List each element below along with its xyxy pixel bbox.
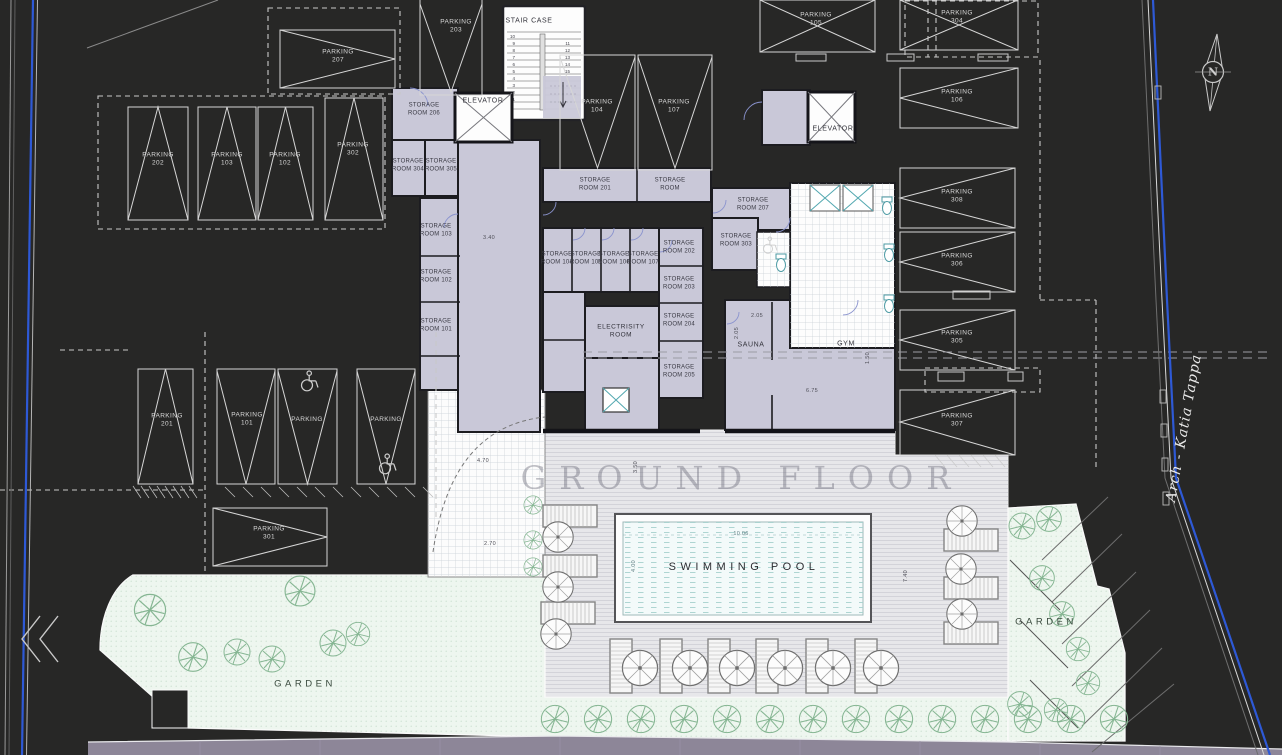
dim-sauna-h: 2.05 — [734, 327, 740, 339]
dim-pool-width: 4.00 — [631, 560, 637, 572]
dim-entry: 4.70 — [477, 458, 489, 464]
swimming-pool-label: SWIMMING POOL — [669, 561, 820, 573]
parking-label-201: PARKING201 — [151, 413, 183, 430]
stair-numbers-left: 10987654321 — [505, 33, 515, 103]
parking-label-207: PARKING207 — [322, 49, 354, 66]
storage-label-101: STORAGEROOM 101 — [420, 319, 452, 334]
parking-label-305: PARKING305 — [941, 330, 973, 347]
storage-label-unnumbered: STORAGEROOM — [655, 178, 686, 193]
parking-label-103: PARKING103 — [211, 152, 243, 169]
parking-label-302: PARKING302 — [337, 142, 369, 159]
parking-label-307: PARKING307 — [941, 413, 973, 430]
storage-label-104: STORAGEROOM 104 — [541, 252, 573, 267]
storage-label-102: STORAGEROOM 102 — [420, 270, 452, 285]
storage-label-305: STORAGEROOM 305 — [425, 159, 457, 174]
storage-label-106: STORAGEROOM 106 — [598, 252, 630, 267]
elevator-label-b: ELEVATOR — [813, 126, 854, 133]
garden-label-right: GARDEN — [1015, 617, 1077, 628]
parking-label-102: PARKING102 — [269, 152, 301, 169]
floor-title-watermark: GROUND FLOOR — [521, 459, 964, 497]
north-compass-icon: N — [1208, 66, 1218, 79]
dim-corridor: 3.40 — [483, 235, 495, 241]
elevator-label-a: ELEVATOR — [463, 98, 504, 105]
storage-label-201: STORAGEROOM 201 — [579, 178, 611, 193]
dim-deck-right: 7.40 — [903, 570, 909, 582]
dim-gym-v: 1.50 — [865, 352, 871, 364]
storage-label-206: STORAGEROOM 206 — [408, 103, 440, 118]
parking-label-306: PARKING306 — [941, 253, 973, 270]
garden-label-left: GARDEN — [274, 679, 336, 690]
storage-label-303: STORAGEROOM 303 — [720, 234, 752, 249]
gym-label: GYM — [837, 341, 855, 348]
storage-label-203: STORAGEROOM 203 — [663, 277, 695, 292]
parking-label-105: PARKING105 — [800, 12, 832, 29]
storage-label-304: STORAGEROOM 304 — [392, 159, 424, 174]
storage-label-202: STORAGEROOM 202 — [663, 241, 695, 256]
storage-label-205: STORAGEROOM 205 — [663, 365, 695, 380]
site-plan-graphics — [0, 0, 1282, 755]
dim-gym-w: 6.75 — [806, 388, 818, 394]
storage-label-207: STORAGEROOM 207 — [737, 198, 769, 213]
storage-label-107: STORAGEROOM 107 — [627, 252, 659, 267]
parking-label-accessible-2: PARKING — [370, 416, 402, 424]
stair-numbers-right: 1112131415 — [558, 40, 570, 75]
parking-label-301: PARKING301 — [253, 526, 285, 543]
floor-plan-canvas: GROUND FLOOR PARKING207 PARKING203 PARKI… — [0, 0, 1282, 755]
parking-label-202: PARKING202 — [142, 152, 174, 169]
dim-pool-length: 10.06 — [733, 531, 748, 537]
parking-label-308: PARKING308 — [941, 189, 973, 206]
sauna-label: SAUNA — [737, 342, 764, 349]
parking-label-106: PARKING106 — [941, 89, 973, 106]
parking-label-101: PARKING101 — [231, 412, 263, 429]
parking-label-104: PARKING104 — [581, 99, 613, 116]
parking-label-accessible-1: PARKING — [291, 416, 323, 424]
dim-deck-v: 3.50 — [633, 461, 639, 473]
electricity-room-label: ELECTRISITYROOM — [597, 324, 644, 341]
parking-label-304: PARKING304 — [941, 10, 973, 27]
parking-label-203: PARKING203 — [440, 19, 472, 36]
stair-case-label: STAIR CASE — [505, 18, 552, 25]
dim-sauna-w: 2.05 — [751, 313, 763, 319]
storage-label-103: STORAGEROOM 103 — [420, 224, 452, 239]
dim-walk: 2.70 — [484, 541, 496, 547]
parking-label-107: PARKING107 — [658, 99, 690, 116]
storage-label-204: STORAGEROOM 204 — [663, 314, 695, 329]
